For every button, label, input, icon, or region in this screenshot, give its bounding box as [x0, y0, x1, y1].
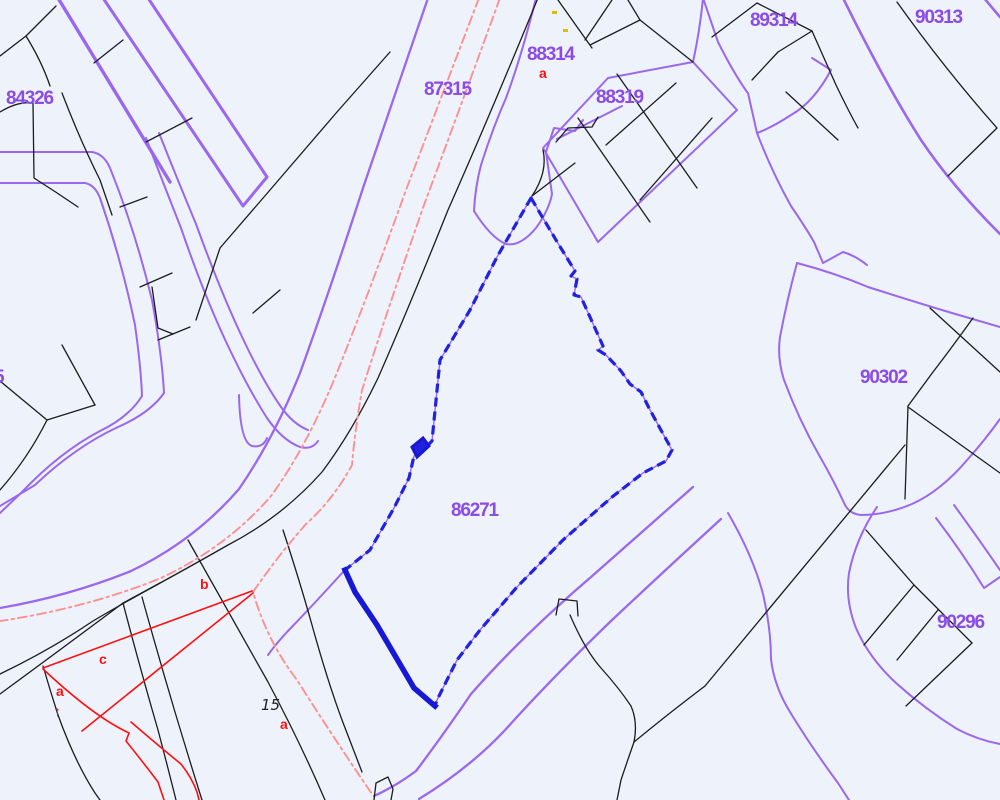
annotation-a-bottom: a — [280, 716, 288, 732]
house-number-15: 15 — [261, 696, 280, 714]
annotation-c: c — [99, 651, 107, 667]
block-label-90296[interactable]: 90296 — [937, 612, 984, 633]
block-label-88314[interactable]: 88314 — [527, 44, 575, 65]
selected-parcel-label-86271[interactable]: 86271 — [451, 500, 499, 521]
block-label-90313[interactable]: 90313 — [915, 7, 962, 28]
block-label-88319[interactable]: 88319 — [596, 87, 643, 108]
annotation-a-under-88314: a — [539, 65, 547, 81]
annotation-a-left: a — [56, 683, 64, 699]
block-label-90302[interactable]: 90302 — [860, 367, 907, 388]
annotation-b: b — [200, 576, 209, 592]
map-canvas[interactable]: 84326 87315 88314 88319 89314 90313 9030… — [0, 0, 1000, 800]
block-label-87315[interactable]: 87315 — [424, 79, 472, 100]
map-background — [0, 0, 1000, 800]
cadastral-map: 84326 87315 88314 88319 89314 90313 9030… — [0, 0, 1000, 800]
block-label-84326[interactable]: 84326 — [6, 88, 53, 109]
block-label-89314[interactable]: 89314 — [750, 10, 798, 31]
north-arrow-icon: ↑ — [54, 703, 61, 719]
